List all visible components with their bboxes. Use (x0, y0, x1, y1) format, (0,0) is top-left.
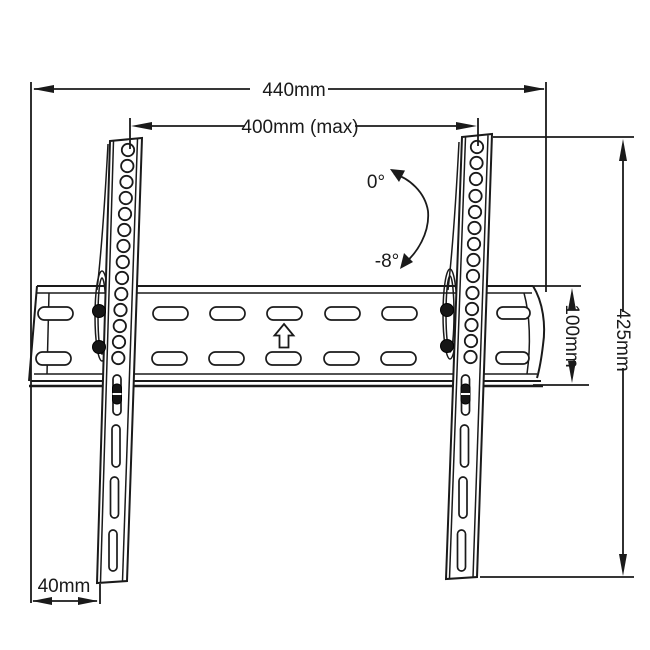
up-arrow-icon (275, 324, 294, 348)
overall-width-label: 440mm (262, 80, 325, 101)
dimension-wall-clearance: 40mm (32, 576, 100, 605)
wall-mount-diagram: 440mm 400mm (max) 425mm 100mm 40mm (0, 0, 650, 650)
tilt-angle-annotation: 0° -8° (367, 169, 428, 272)
left-knob-lower (93, 341, 106, 354)
left-bracket-arm (93, 138, 143, 583)
tilt-up-label: 0° (367, 172, 385, 193)
dimension-hole-pattern-width: 400mm (max) (130, 117, 478, 149)
right-bracket-arm (441, 134, 493, 579)
bracket-height-label: 425mm (612, 308, 633, 371)
right-knob-upper (441, 304, 454, 317)
technical-drawing-canvas: 440mm 400mm (max) 425mm 100mm 40mm (0, 0, 650, 650)
left-knob-upper (93, 305, 106, 318)
tilt-down-label: -8° (375, 251, 400, 272)
plate-height-label: 100mm (561, 304, 582, 367)
hole-pattern-width-label: 400mm (max) (241, 117, 358, 138)
wall-clearance-label: 40mm (38, 576, 91, 597)
right-knob-lower (441, 340, 454, 353)
